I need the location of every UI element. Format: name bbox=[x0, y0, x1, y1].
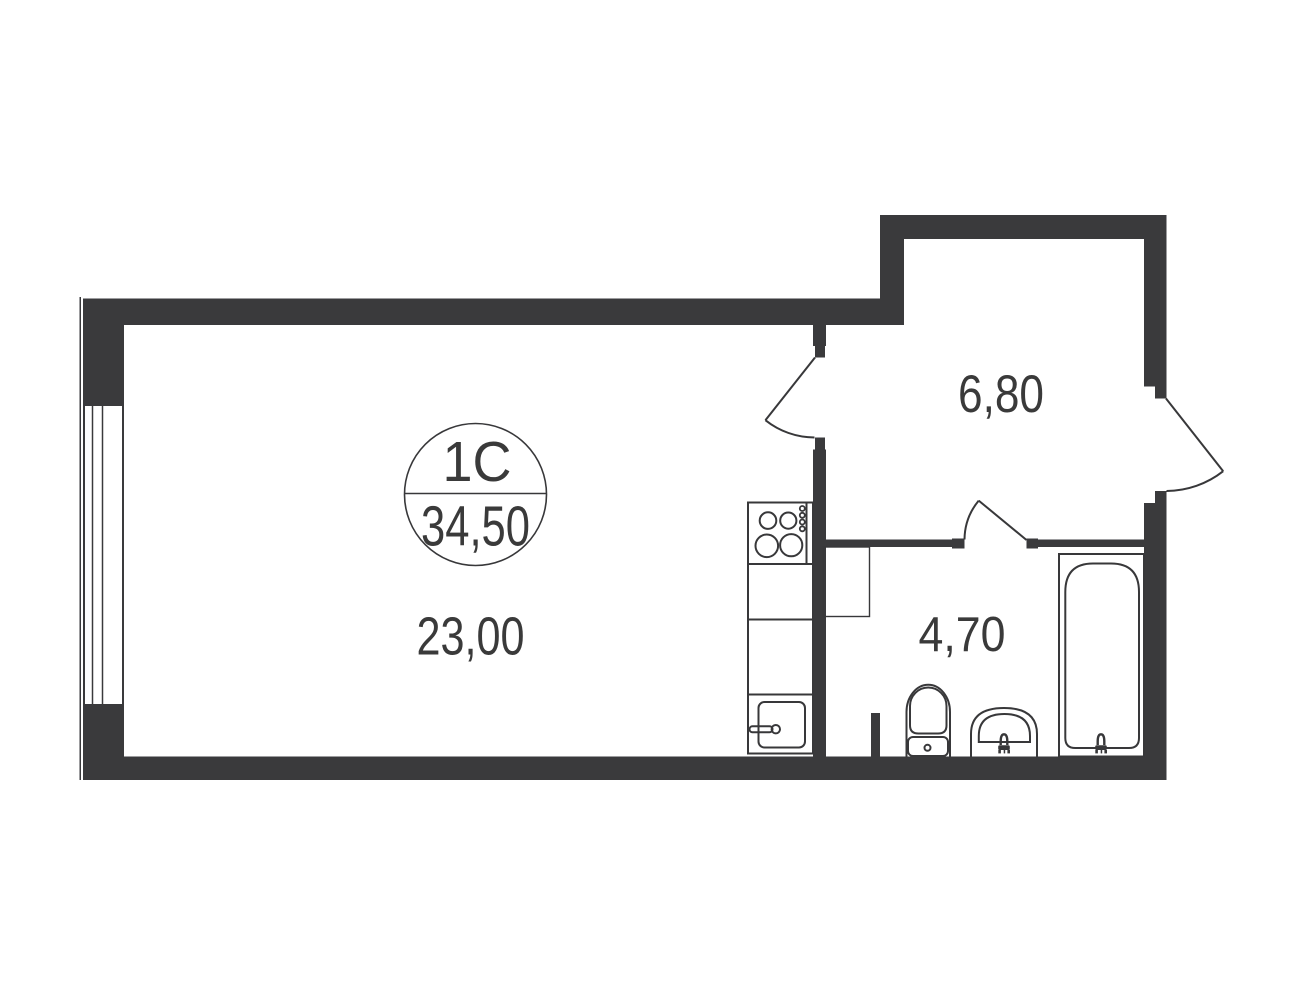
svg-text:34,50: 34,50 bbox=[421, 495, 530, 559]
svg-text:4,70: 4,70 bbox=[919, 607, 1006, 662]
svg-text:1C: 1C bbox=[443, 430, 512, 494]
svg-text:6,80: 6,80 bbox=[958, 365, 1044, 424]
svg-text:23,00: 23,00 bbox=[417, 607, 525, 667]
